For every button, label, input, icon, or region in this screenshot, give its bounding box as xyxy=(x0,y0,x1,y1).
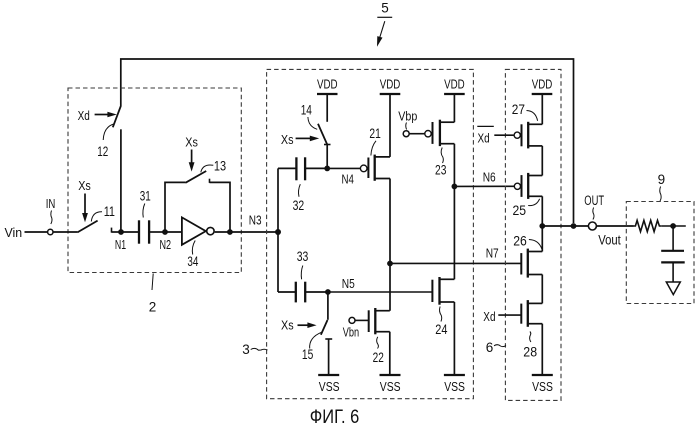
svg-text:12: 12 xyxy=(97,144,108,159)
svg-text:IN: IN xyxy=(46,196,56,211)
svg-text:ФИГ. 6: ФИГ. 6 xyxy=(310,407,360,425)
svg-text:VDD: VDD xyxy=(444,77,465,91)
svg-text:Xs: Xs xyxy=(78,178,91,193)
svg-text:Xd: Xd xyxy=(78,108,90,123)
svg-text:14: 14 xyxy=(301,102,313,117)
svg-text:VSS: VSS xyxy=(319,380,340,394)
svg-text:9: 9 xyxy=(658,172,666,187)
svg-text:26: 26 xyxy=(513,234,527,249)
svg-text:OUT: OUT xyxy=(584,193,604,208)
svg-text:Xd: Xd xyxy=(483,309,495,324)
svg-text:VDD: VDD xyxy=(380,77,401,91)
svg-text:33: 33 xyxy=(297,249,309,264)
svg-text:22: 22 xyxy=(373,350,384,365)
svg-text:2: 2 xyxy=(149,300,157,315)
svg-text:13: 13 xyxy=(214,158,226,173)
svg-text:Vin: Vin xyxy=(5,225,23,240)
svg-text:N5: N5 xyxy=(342,276,355,291)
svg-text:N4: N4 xyxy=(342,172,354,187)
svg-text:Xs: Xs xyxy=(281,317,294,332)
svg-text:11: 11 xyxy=(104,204,115,219)
svg-text:Xd: Xd xyxy=(478,130,490,145)
svg-text:24: 24 xyxy=(435,322,448,337)
svg-text:VSS: VSS xyxy=(444,380,465,394)
svg-text:32: 32 xyxy=(293,198,305,213)
svg-text:N7: N7 xyxy=(486,245,499,260)
svg-text:25: 25 xyxy=(513,203,527,218)
svg-text:21: 21 xyxy=(369,126,380,141)
svg-text:Vbp: Vbp xyxy=(398,109,417,123)
svg-text:5: 5 xyxy=(381,1,389,16)
svg-text:Vbn: Vbn xyxy=(343,326,359,340)
svg-text:31: 31 xyxy=(140,188,151,203)
svg-text:N6: N6 xyxy=(483,169,496,184)
svg-text:VDD: VDD xyxy=(532,77,553,91)
svg-text:Xs: Xs xyxy=(281,132,294,147)
svg-text:VDD: VDD xyxy=(317,77,338,91)
svg-text:15: 15 xyxy=(302,347,313,362)
svg-text:23: 23 xyxy=(435,162,446,177)
svg-text:Vout: Vout xyxy=(598,233,621,248)
svg-text:27: 27 xyxy=(512,102,525,117)
svg-text:N1: N1 xyxy=(115,237,126,252)
svg-text:Xs: Xs xyxy=(185,134,198,149)
svg-text:VSS: VSS xyxy=(532,380,553,394)
svg-text:N2: N2 xyxy=(160,237,172,252)
svg-text:28: 28 xyxy=(523,344,537,359)
svg-text:N3: N3 xyxy=(249,213,262,228)
svg-text:6: 6 xyxy=(486,340,494,355)
svg-text:VSS: VSS xyxy=(380,380,401,394)
svg-text:3: 3 xyxy=(242,342,250,357)
svg-text:34: 34 xyxy=(187,254,198,269)
